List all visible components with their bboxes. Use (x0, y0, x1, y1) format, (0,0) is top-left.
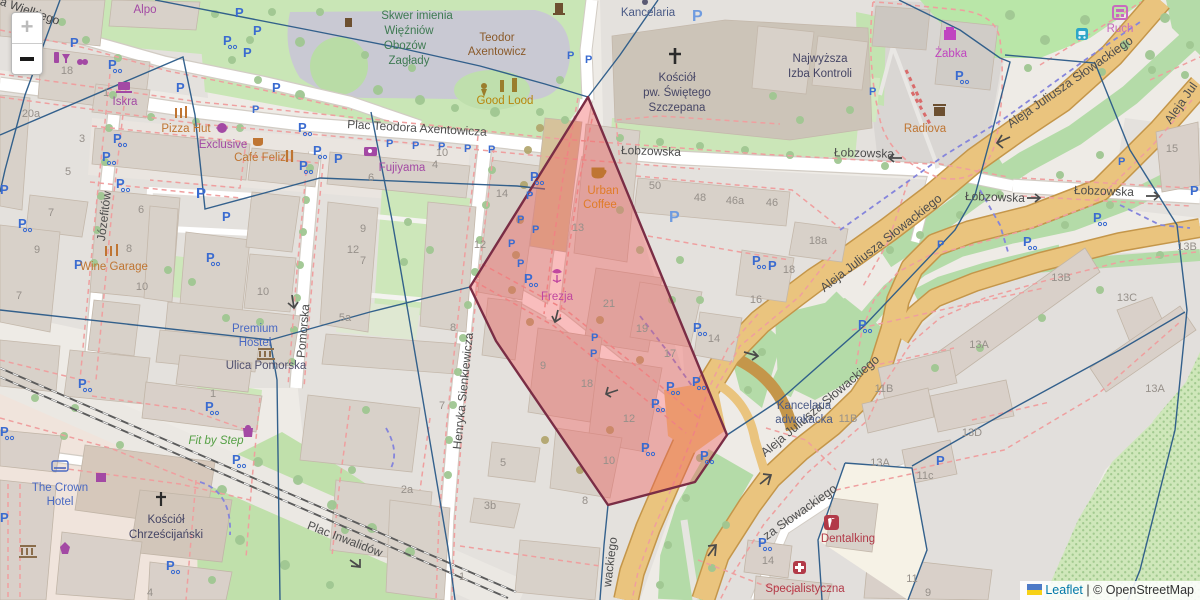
svg-text:18: 18 (783, 264, 795, 276)
svg-text:Obozów: Obozów (384, 40, 427, 52)
svg-text:14: 14 (496, 188, 508, 200)
svg-text:P: P (464, 143, 471, 155)
svg-text:3b: 3b (484, 500, 496, 512)
svg-text:P: P (488, 144, 495, 156)
svg-text:Łobzowska: Łobzowska (621, 143, 682, 159)
svg-text:1: 1 (210, 388, 216, 400)
svg-text:Kościół: Kościół (658, 72, 696, 84)
svg-text:Radiova: Radiova (904, 123, 947, 135)
svg-text:9: 9 (540, 360, 546, 372)
svg-text:2a: 2a (401, 484, 414, 496)
svg-text:Premium: Premium (232, 323, 278, 335)
svg-text:16: 16 (750, 294, 762, 306)
svg-text:Hotel: Hotel (47, 496, 74, 508)
svg-text:Kancelaria: Kancelaria (621, 7, 676, 19)
svg-text:Iskra: Iskra (113, 96, 139, 108)
svg-text:11c: 11c (917, 470, 934, 482)
svg-text:Specjalistyczna: Specjalistyczna (765, 583, 845, 595)
svg-text:11B: 11B (839, 413, 858, 425)
svg-text:5: 5 (500, 457, 506, 469)
svg-text:13A: 13A (1145, 383, 1165, 395)
svg-text:18: 18 (61, 65, 73, 77)
svg-text:P: P (532, 224, 539, 236)
svg-text:8: 8 (582, 495, 588, 507)
svg-text:13D: 13D (962, 427, 982, 439)
svg-text:Więźniów: Więźniów (384, 25, 434, 37)
svg-text:P: P (1190, 183, 1199, 198)
svg-text:10: 10 (603, 455, 615, 467)
svg-text:4: 4 (147, 587, 153, 599)
svg-text:Najwyższa: Najwyższa (793, 53, 849, 65)
svg-text:19: 19 (636, 323, 648, 335)
svg-text:Ulica Pomorska: Ulica Pomorska (226, 360, 307, 372)
svg-text:P: P (585, 54, 592, 66)
svg-text:14: 14 (762, 555, 774, 567)
svg-text:P: P (235, 5, 244, 20)
svg-text:8: 8 (450, 322, 456, 334)
svg-text:pw. Świętego: pw. Świętego (643, 86, 711, 99)
svg-text:15: 15 (1166, 143, 1178, 155)
svg-text:adwokacka: adwokacka (775, 414, 833, 426)
svg-text:20a: 20a (22, 108, 41, 120)
svg-text:13A: 13A (969, 339, 989, 351)
svg-text:Frezja: Frezja (541, 291, 574, 303)
svg-text:Kancelaria: Kancelaria (777, 400, 832, 412)
svg-text:Dentalking: Dentalking (821, 533, 875, 545)
svg-text:P: P (517, 214, 524, 226)
svg-text:P: P (692, 8, 703, 25)
svg-text:14: 14 (708, 333, 720, 345)
svg-text:3: 3 (79, 133, 85, 145)
svg-text:9: 9 (925, 587, 931, 599)
svg-text:Kościół: Kościół (147, 514, 185, 526)
svg-text:Żabka: Żabka (935, 47, 968, 60)
svg-text:7: 7 (360, 255, 366, 267)
svg-text:12: 12 (347, 244, 359, 256)
svg-text:P: P (176, 80, 185, 95)
svg-text:P: P (567, 50, 574, 62)
svg-text:Alpo: Alpo (133, 4, 156, 16)
svg-text:Pizza Hut: Pizza Hut (161, 123, 211, 135)
svg-text:P: P (0, 182, 9, 197)
svg-text:P: P (196, 185, 206, 202)
svg-text:Chrześcijański: Chrześcijański (129, 529, 203, 541)
svg-text:Izba Kontroli: Izba Kontroli (788, 68, 852, 80)
svg-text:10: 10 (136, 281, 148, 293)
svg-text:9: 9 (360, 223, 366, 235)
svg-text:Coffee: Coffee (583, 199, 617, 211)
svg-text:5: 5 (65, 166, 71, 178)
svg-text:18a: 18a (809, 235, 828, 247)
svg-text:P: P (334, 151, 343, 166)
svg-text:P: P (526, 190, 533, 202)
svg-text:P: P (222, 209, 231, 224)
svg-text:P: P (937, 239, 944, 251)
svg-text:Zagłady: Zagłady (389, 55, 430, 67)
svg-text:Teodor: Teodor (479, 32, 514, 44)
svg-text:10: 10 (257, 286, 269, 298)
svg-text:P: P (517, 258, 524, 270)
svg-text:7: 7 (439, 400, 445, 412)
svg-text:46a: 46a (726, 195, 745, 207)
svg-text:P: P (412, 140, 419, 152)
svg-text:48: 48 (694, 192, 706, 204)
svg-text:46: 46 (766, 197, 778, 209)
svg-text:Axentowicz: Axentowicz (468, 46, 526, 58)
svg-text:7: 7 (48, 207, 54, 219)
svg-text:Café Feliz: Café Feliz (234, 152, 286, 164)
svg-text:9: 9 (34, 244, 40, 256)
svg-text:P: P (253, 23, 262, 38)
svg-text:13A: 13A (870, 457, 890, 469)
svg-text:7: 7 (16, 290, 22, 302)
svg-text:P: P (272, 80, 281, 95)
svg-text:Wine Garage: Wine Garage (80, 261, 148, 273)
svg-text:4: 4 (432, 159, 438, 171)
svg-text:Ruch: Ruch (1107, 23, 1134, 35)
svg-text:17: 17 (664, 348, 676, 360)
svg-text:Skwer imienia: Skwer imienia (381, 10, 453, 22)
svg-text:Exclusive: Exclusive (199, 139, 248, 151)
svg-text:P: P (669, 209, 680, 226)
svg-text:8: 8 (126, 243, 132, 255)
svg-text:13B: 13B (1177, 241, 1197, 253)
svg-text:P: P (936, 453, 945, 468)
svg-text:Urban: Urban (587, 185, 618, 197)
svg-text:Hostel: Hostel (239, 337, 272, 349)
svg-text:P: P (1118, 156, 1125, 168)
svg-text:13: 13 (572, 222, 584, 234)
svg-text:11B: 11B (875, 383, 894, 395)
svg-text:11: 11 (906, 573, 917, 585)
svg-text:13B: 13B (1051, 272, 1071, 284)
svg-text:P: P (252, 104, 259, 116)
svg-text:Łobzowska: Łobzowska (834, 145, 895, 161)
svg-text:6: 6 (368, 172, 374, 184)
svg-text:P: P (590, 348, 597, 360)
svg-text:18: 18 (581, 378, 593, 390)
svg-text:Szczepana: Szczepana (649, 102, 707, 114)
svg-text:P: P (869, 86, 876, 98)
svg-text:12: 12 (623, 413, 635, 425)
svg-text:21: 21 (603, 298, 615, 310)
svg-text:50: 50 (649, 180, 661, 192)
svg-text:The Crown: The Crown (32, 482, 88, 494)
svg-text:Fujiyama: Fujiyama (379, 162, 426, 174)
svg-text:Fit by Step: Fit by Step (189, 435, 245, 447)
svg-text:Łobzowska: Łobzowska (965, 189, 1026, 205)
svg-text:Good Lood: Good Lood (477, 95, 534, 107)
svg-text:Łobzowska: Łobzowska (1074, 183, 1135, 199)
svg-text:13C: 13C (1117, 292, 1137, 304)
svg-text:5a: 5a (339, 312, 352, 324)
svg-text:6: 6 (138, 204, 144, 216)
svg-text:P: P (508, 238, 515, 250)
svg-text:P: P (386, 138, 393, 150)
svg-text:P: P (591, 332, 598, 344)
svg-text:P: P (768, 258, 777, 273)
svg-text:P: P (70, 35, 79, 50)
svg-text:1: 1 (459, 571, 465, 583)
svg-text:P: P (243, 45, 252, 60)
svg-text:12: 12 (474, 239, 486, 251)
svg-text:1: 1 (103, 87, 109, 99)
svg-text:P: P (0, 510, 9, 525)
svg-text:10: 10 (436, 147, 448, 159)
